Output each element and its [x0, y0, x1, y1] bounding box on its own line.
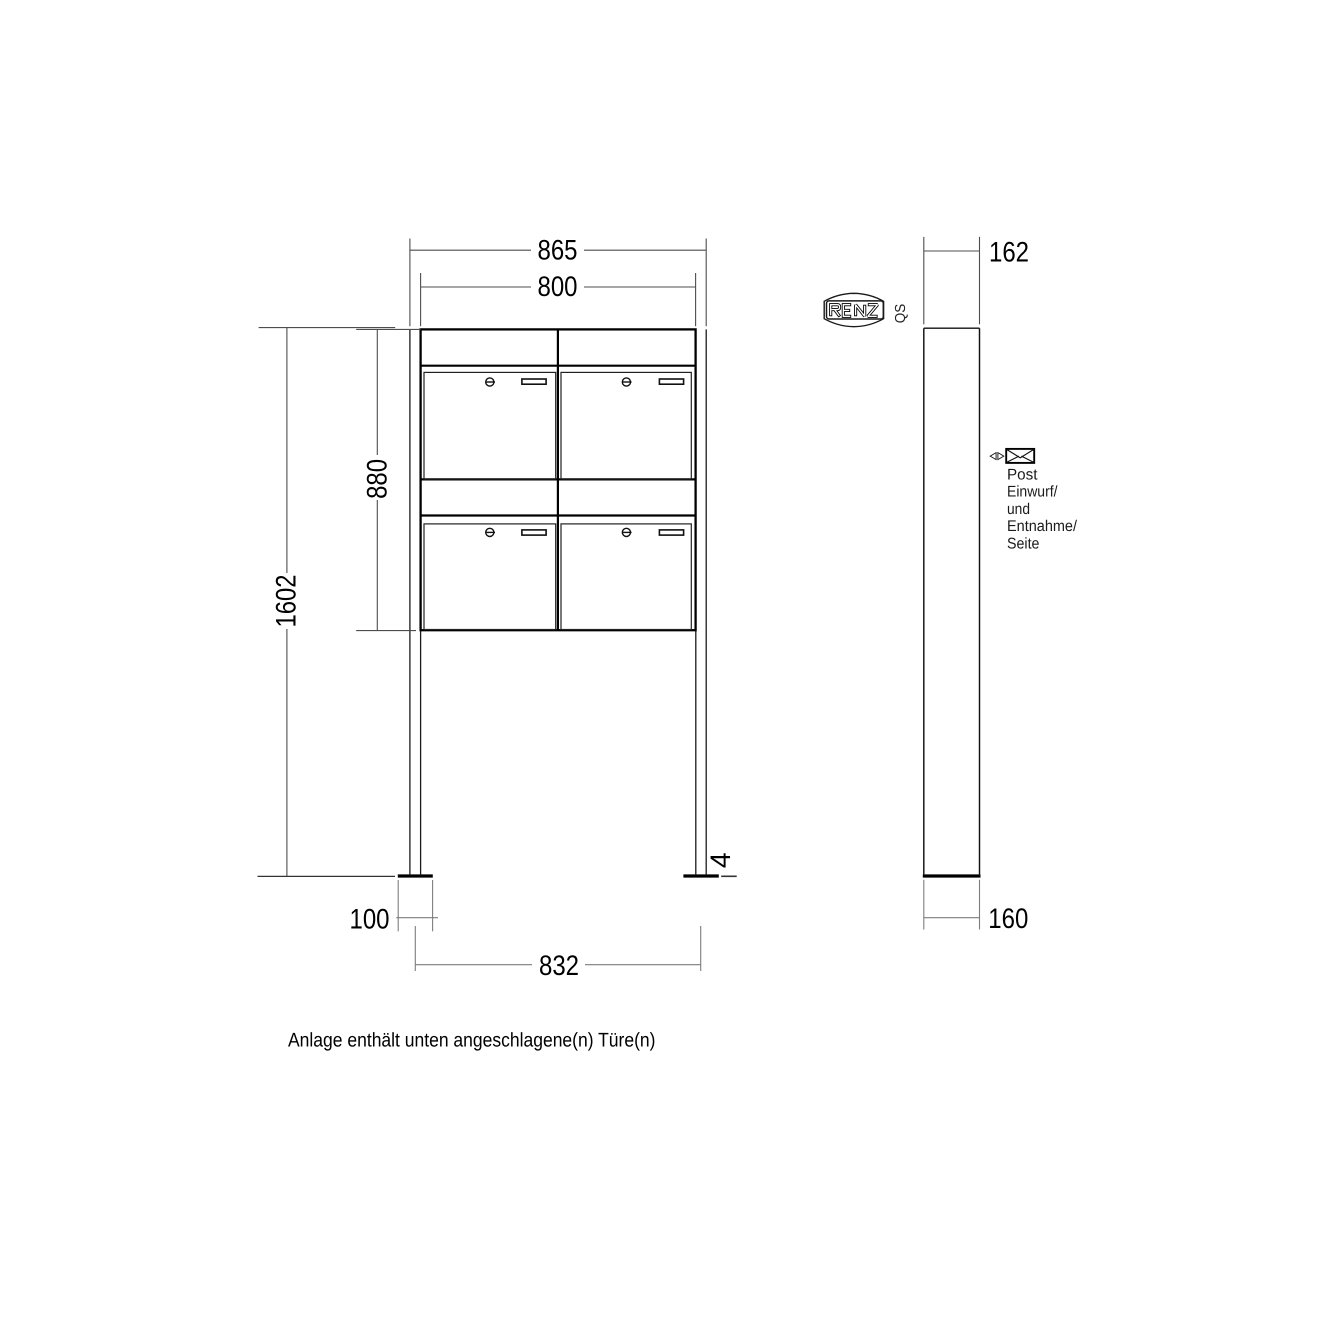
svg-text:880: 880	[360, 459, 392, 499]
svg-text:QS: QS	[893, 304, 909, 324]
svg-text:Seite: Seite	[1007, 535, 1040, 552]
svg-text:800: 800	[538, 270, 578, 302]
svg-text:Anlage enthält unten angeschla: Anlage enthält unten angeschlagene(n) Tü…	[288, 1030, 656, 1052]
svg-text:und: und	[1007, 501, 1030, 518]
svg-text:4: 4	[704, 852, 736, 868]
svg-text:162: 162	[989, 236, 1029, 268]
svg-text:160: 160	[988, 902, 1028, 934]
svg-text:832: 832	[539, 949, 579, 981]
svg-text:865: 865	[538, 233, 578, 265]
svg-text:Einwurf/: Einwurf/	[1007, 484, 1058, 501]
svg-text:1602: 1602	[269, 575, 301, 628]
svg-text:Post: Post	[1007, 466, 1038, 483]
svg-text:100: 100	[350, 902, 390, 934]
svg-text:Entnahme/: Entnahme/	[1007, 518, 1078, 535]
